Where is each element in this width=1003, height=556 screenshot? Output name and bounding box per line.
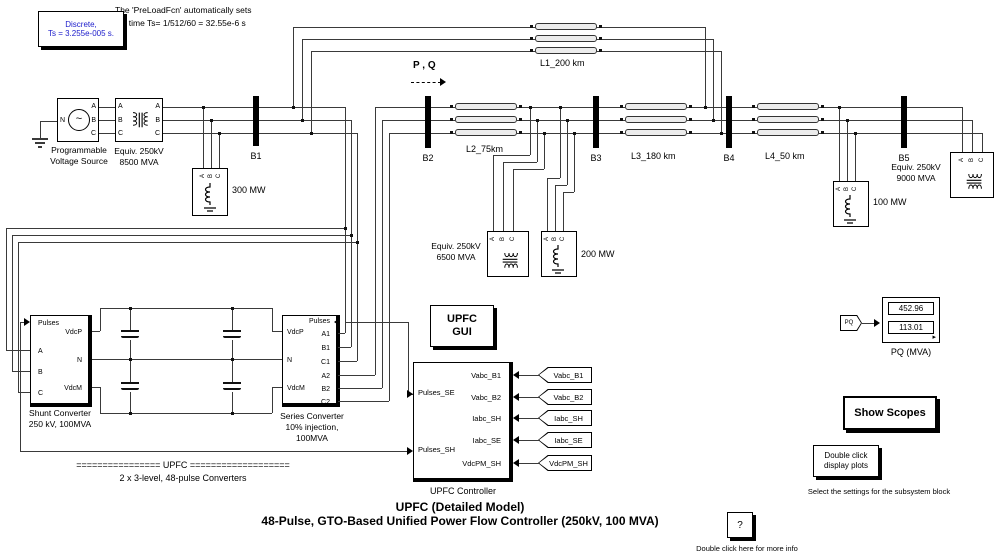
wire: [345, 107, 346, 333]
wire: [517, 120, 593, 121]
junction-dot: [559, 106, 562, 109]
wire: [721, 51, 722, 133]
transmission-line-segment[interactable]: [757, 103, 819, 110]
wire: [130, 340, 131, 359]
wire: [6, 228, 7, 350]
wire: [519, 397, 540, 398]
port-letter: B: [969, 158, 975, 162]
wire: [12, 371, 30, 372]
bus-b5[interactable]: [901, 96, 907, 148]
pq-display-block[interactable]: 452.96 113.01 ▸: [882, 297, 940, 343]
junction-dot: [704, 106, 707, 109]
wire-arrowhead-icon: [513, 436, 519, 444]
line-l2-label: L2_75km: [466, 143, 503, 155]
from-tag-vabc-b2[interactable]: Vabc_B2: [538, 389, 592, 405]
wire: [382, 120, 425, 121]
junction-dot: [292, 106, 295, 109]
bus-b4[interactable]: [726, 96, 732, 148]
wire: [567, 120, 568, 185]
wire: [163, 133, 253, 134]
equiv-source-left-block[interactable]: A B C A B C: [115, 98, 163, 142]
from-tag-vdcpm-sh[interactable]: VdcPM_SH: [538, 455, 592, 471]
wire: [163, 107, 253, 108]
load-300mw-block[interactable]: A B C: [192, 168, 228, 216]
wire: [272, 331, 282, 332]
wire: [203, 107, 204, 168]
wire: [519, 418, 540, 419]
wire: [408, 322, 409, 394]
source-port-c: C: [91, 130, 96, 138]
series-port-vdcm: VdcM: [287, 385, 305, 393]
bus-b1[interactable]: [253, 96, 259, 146]
wire: [40, 121, 57, 122]
shunt-port-c: C: [38, 390, 43, 398]
wire: [99, 133, 115, 134]
bus-b2[interactable]: [425, 96, 431, 148]
port-letter: B: [500, 237, 506, 241]
capacitor-plate-icon: [223, 336, 241, 338]
wire: [211, 120, 212, 168]
port-letter: A: [200, 174, 206, 178]
wire: [389, 133, 425, 134]
series-port-b1: B1: [321, 345, 330, 353]
transmission-line-segment[interactable]: [625, 116, 687, 123]
controller-input-vabc-b1: Vabc_B1: [471, 372, 501, 380]
wire: [100, 308, 101, 331]
junction-dot: [210, 119, 213, 122]
wire: [338, 361, 357, 362]
shunt-port-n: N: [77, 357, 82, 365]
wire-arrowhead-icon: [407, 390, 413, 398]
discrete-label-line1: Discrete,: [65, 20, 97, 29]
wire: [547, 178, 548, 231]
series-converter-label: Series Converter10% injection,100MVA: [272, 411, 352, 444]
wire: [389, 133, 390, 401]
display-overflow-arrow-icon: ▸: [932, 333, 936, 341]
wire: [519, 440, 540, 441]
wire: [862, 323, 874, 324]
wire-arrowhead-icon: [334, 318, 340, 326]
wire: [544, 133, 545, 169]
line-l3-label: L3_180 km: [631, 150, 676, 162]
wire: [713, 39, 714, 120]
bus-b3-label: B3: [584, 152, 608, 164]
wire: [346, 322, 408, 323]
wire: [493, 155, 494, 231]
shunt-port-b: B: [38, 369, 43, 377]
from-tag-vabc-b1[interactable]: Vabc_B1: [538, 367, 592, 383]
wire: [555, 185, 567, 186]
wire: [219, 133, 220, 168]
equiv-left-label: Equiv. 250kV8500 MVA: [107, 146, 171, 168]
equiv-mid-label: Equiv. 250kV6500 MVA: [427, 241, 485, 263]
junction-dot: [536, 119, 539, 122]
capacitor-plate-icon: [121, 330, 139, 332]
shunt-converter-block[interactable]: Pulses A B C VdcP N VdcM: [30, 315, 92, 407]
source-impedance-icon: [494, 246, 524, 274]
discrete-label-line2: Ts = 3.255e-005 s.: [48, 29, 114, 38]
wire: [513, 169, 544, 170]
wire: [375, 107, 376, 375]
equiv-right-label: Equiv. 250kV9000 MVA: [885, 162, 947, 184]
line-l1-label: L1_200 km: [540, 57, 585, 69]
wire: [503, 162, 537, 163]
upfc-gui-label-line1: UPFC: [447, 313, 477, 326]
junction-dot: [231, 358, 234, 361]
wire: [100, 413, 272, 414]
bus-b4-label: B4: [717, 152, 741, 164]
wire: [338, 375, 375, 376]
transmission-line-segment[interactable]: [757, 129, 819, 136]
sine-source-icon: ~: [68, 109, 90, 131]
wire: [357, 133, 358, 361]
port-letter: A: [118, 103, 123, 111]
from-tag-iabc-sh[interactable]: Iabc_SH: [538, 410, 592, 426]
wire: [302, 39, 713, 40]
controller-input-vdcpm-sh: VdcPM_SH: [462, 460, 501, 468]
upfc-gui-label-line2: GUI: [452, 326, 472, 339]
wire: [311, 51, 312, 133]
pq-flow-arrowhead-icon: [440, 78, 446, 86]
load-200mw-block[interactable]: A B C: [541, 231, 577, 277]
port-letter: A: [490, 237, 496, 241]
wire-arrowhead-icon: [513, 371, 519, 379]
junction-dot: [202, 106, 205, 109]
port-letter: A: [544, 237, 550, 241]
series-port-pulses: Pulses: [309, 318, 330, 326]
model-title-line2: 48-Pulse, GTO-Based Unified Power Flow C…: [60, 515, 860, 527]
bus-b1-label: B1: [244, 150, 268, 162]
junction-dot: [543, 132, 546, 135]
controller-input-iabc-se: Iabc_SE: [473, 437, 501, 445]
wire: [819, 133, 901, 134]
wire: [855, 133, 856, 181]
wire-arrowhead-icon: [513, 414, 519, 422]
port-letter: B: [118, 117, 123, 125]
capacitor-plate-icon: [121, 336, 139, 338]
wire: [563, 192, 564, 231]
wire: [574, 133, 575, 192]
junction-dot: [356, 241, 359, 244]
series-port-vdcp: VdcP: [287, 329, 304, 337]
wire: [232, 392, 233, 413]
transmission-line-segment[interactable]: [625, 129, 687, 136]
wire-arrowhead-icon: [24, 318, 30, 326]
source-port-a: A: [91, 103, 96, 111]
from-tag-iabc-se[interactable]: Iabc_SE: [538, 432, 592, 448]
junction-dot: [231, 307, 234, 310]
wire: [40, 121, 41, 138]
junction-dot: [350, 234, 353, 237]
wire: [705, 27, 706, 107]
wire: [972, 120, 973, 152]
wire: [519, 375, 540, 376]
wire: [259, 133, 357, 134]
wire: [100, 308, 272, 309]
wire: [6, 228, 345, 229]
shunt-port-vdcm: VdcM: [64, 385, 82, 393]
junction-dot: [129, 358, 132, 361]
upfc-controller-block[interactable]: Pulses_SE Pulses_SH Vabc_B1 Vabc_B2 Iabc…: [413, 362, 513, 482]
series-port-n: N: [287, 357, 292, 365]
load-200mw-label: 200 MW: [581, 248, 615, 260]
controller-input-iabc-sh: Iabc_SH: [472, 415, 501, 423]
capacitor-plate-icon: [121, 382, 139, 384]
wire: [259, 120, 351, 121]
wire-arrowhead-icon: [407, 447, 413, 455]
wire: [130, 308, 131, 330]
wire: [338, 347, 351, 348]
series-port-a2: A2: [321, 373, 330, 381]
wire: [272, 387, 282, 388]
transmission-line-segment[interactable]: [535, 35, 597, 42]
simulink-model-canvas: The 'PreLoadFcn' automatically sets samp…: [0, 0, 1003, 556]
series-port-a1: A1: [321, 331, 330, 339]
transmission-line-segment[interactable]: [455, 103, 517, 110]
wire: [163, 120, 253, 121]
junction-dot: [344, 227, 347, 230]
display-plots-label-line1: Double click: [824, 451, 867, 461]
junction-dot: [854, 132, 857, 135]
wire: [537, 120, 538, 162]
port-letter: B: [552, 237, 558, 241]
pq-display-value-q: 113.01: [888, 321, 934, 334]
wire: [547, 178, 560, 179]
junction-dot: [231, 412, 234, 415]
port-letter: B: [844, 187, 850, 191]
junction-dot: [301, 119, 304, 122]
capacitor-plate-icon: [223, 330, 241, 332]
shunt-port-a: A: [38, 348, 43, 356]
source-impedance-icon: [958, 167, 988, 195]
display-plots-label-line2: display plots: [824, 461, 868, 471]
settings-caption: Select the settings for the subsystem bl…: [756, 486, 1002, 498]
wire: [99, 120, 115, 121]
load-300mw-label: 300 MW: [232, 184, 266, 196]
bus-b3[interactable]: [593, 96, 599, 148]
port-letter: C: [560, 237, 566, 241]
wire: [338, 333, 345, 334]
port-letter: B: [208, 174, 214, 178]
port-letter: C: [852, 187, 858, 191]
pq-flow-arrow: [411, 82, 441, 83]
wire: [20, 451, 407, 452]
bus-b2-label: B2: [416, 152, 440, 164]
wire: [18, 242, 357, 243]
wire: [513, 169, 514, 231]
wire-arrowhead-icon: [874, 319, 880, 327]
wire: [12, 235, 351, 236]
display-plots-button[interactable]: Double click display plots: [813, 445, 879, 477]
wire: [272, 387, 273, 413]
wire: [232, 340, 233, 359]
junction-dot: [838, 106, 841, 109]
load-100mw-block[interactable]: A B C: [833, 181, 869, 227]
info-caption: Double click here for more info: [667, 543, 827, 555]
preload-annotation-line1: The 'PreLoadFcn' automatically sets: [115, 4, 251, 16]
junction-dot: [218, 132, 221, 135]
source-impedance-icon: [126, 106, 154, 136]
wire: [519, 463, 540, 464]
wire: [338, 388, 382, 389]
wire: [982, 133, 983, 152]
wire: [375, 107, 425, 108]
junction-dot: [529, 106, 532, 109]
port-letter: A: [959, 158, 965, 162]
wire: [302, 39, 303, 120]
wire: [847, 120, 848, 181]
port-letter: C: [979, 158, 985, 162]
transmission-line-segment[interactable]: [455, 129, 517, 136]
junction-dot: [573, 132, 576, 135]
wire: [819, 120, 901, 121]
wire: [819, 107, 901, 108]
wire: [560, 107, 561, 178]
port-letter: C: [510, 237, 516, 241]
wire: [130, 392, 131, 413]
junction-dot: [712, 119, 715, 122]
wire: [232, 308, 233, 330]
transmission-line-segment[interactable]: [757, 116, 819, 123]
junction-dot: [846, 119, 849, 122]
wire: [293, 27, 294, 107]
junction-dot: [129, 412, 132, 415]
wire: [555, 185, 556, 231]
load-icon: [548, 245, 568, 275]
series-port-b2: B2: [321, 386, 330, 394]
source-port-n: N: [60, 117, 65, 125]
junction-dot: [310, 132, 313, 135]
wire: [839, 107, 840, 181]
port-letter: C: [216, 174, 222, 178]
port-letter: A: [155, 103, 160, 111]
series-port-c1: C1: [321, 359, 330, 367]
load-icon: [840, 195, 860, 225]
junction-dot: [720, 132, 723, 135]
show-scopes-label: Show Scopes: [854, 407, 926, 419]
upfc-banner: ================ UPFC ==================…: [28, 459, 338, 471]
wire: [99, 107, 115, 108]
port-letter: B: [155, 117, 160, 125]
wire: [272, 308, 273, 331]
load-icon: [200, 183, 220, 213]
wire: [311, 51, 721, 52]
wire: [530, 107, 531, 155]
load-100mw-label: 100 MW: [873, 196, 907, 208]
wire: [100, 387, 101, 413]
controller-input-vabc-b2: Vabc_B2: [471, 394, 501, 402]
from-tag-pq[interactable]: PQ: [840, 315, 862, 331]
controller-output-pulses-sh: Pulses_SH: [418, 446, 455, 454]
transmission-line-segment[interactable]: [625, 103, 687, 110]
port-letter: C: [155, 130, 160, 138]
shunt-converter-label: Shunt Converter250 kV, 100MVA: [18, 408, 102, 430]
source-port-b: B: [91, 117, 96, 125]
wire: [130, 359, 131, 382]
port-letter: A: [836, 187, 842, 191]
powergui-discrete-block[interactable]: Discrete, Ts = 3.255e-005 s.: [38, 11, 124, 47]
equiv-source-mid-block[interactable]: A B C: [487, 231, 529, 277]
junction-dot: [129, 307, 132, 310]
upfc-gui-button[interactable]: UPFC GUI: [430, 305, 494, 347]
wire: [493, 155, 530, 156]
capacitor-plate-icon: [121, 388, 139, 390]
transmission-line-segment[interactable]: [455, 116, 517, 123]
wire: [232, 359, 233, 382]
transmission-line-segment[interactable]: [535, 23, 597, 30]
show-scopes-button[interactable]: Show Scopes: [843, 396, 937, 430]
wire: [907, 133, 982, 134]
programmable-voltage-source-block[interactable]: ~ N A B C: [57, 98, 99, 142]
model-title-line1: UPFC (Detailed Model): [200, 501, 720, 513]
wire: [962, 107, 963, 152]
wire: [20, 322, 21, 451]
shunt-port-vdcp: VdcP: [65, 329, 82, 337]
wire: [18, 242, 19, 392]
upfc-controller-label: UPFC Controller: [413, 485, 513, 497]
shunt-port-pulses: Pulses: [38, 320, 59, 328]
line-l4-label: L4_50 km: [765, 150, 805, 162]
wire-arrowhead-icon: [513, 393, 519, 401]
wire: [907, 107, 962, 108]
wire: [92, 331, 100, 332]
wire: [12, 235, 13, 371]
wire: [517, 133, 593, 134]
pq-flow-annotation: P , Q: [413, 60, 436, 72]
port-letter: C: [118, 130, 123, 138]
wire: [503, 162, 504, 231]
wire: [382, 120, 383, 388]
wire: [563, 192, 574, 193]
wire: [92, 387, 100, 388]
equiv-source-right-block[interactable]: A B C: [950, 152, 994, 198]
series-converter-block[interactable]: Pulses VdcP N VdcM A1 B1 C1 A2 B2 C2: [282, 315, 340, 407]
wire: [293, 27, 705, 28]
controller-output-pulses-se: Pulses_SE: [418, 389, 455, 397]
capacitor-plate-icon: [223, 388, 241, 390]
capacitor-plate-icon: [223, 382, 241, 384]
pq-display-label: PQ (MVA): [880, 346, 942, 358]
pq-display-value-p: 452.96: [888, 302, 934, 315]
wire: [338, 401, 389, 402]
converters-note: 2 x 3-level, 48-pulse Converters: [28, 472, 338, 484]
transmission-line-segment[interactable]: [535, 47, 597, 54]
wire-arrowhead-icon: [513, 459, 519, 467]
junction-dot: [566, 119, 569, 122]
wire: [92, 359, 282, 360]
series-port-c2: C2: [321, 399, 330, 407]
